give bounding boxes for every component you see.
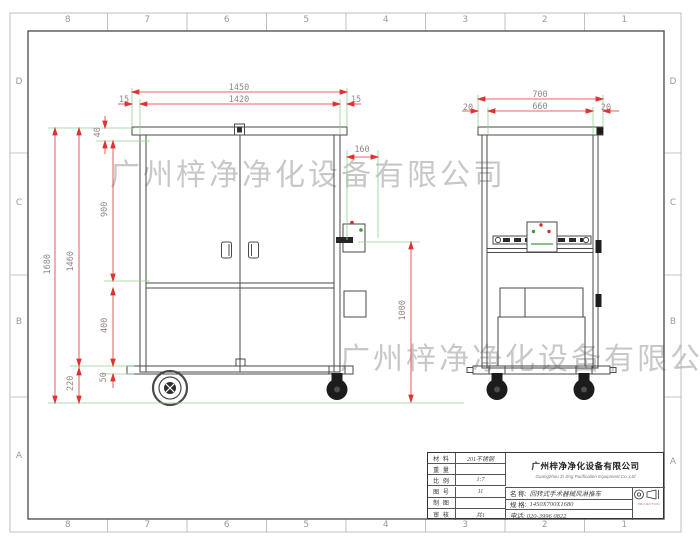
phone-row: 电话: 020-3996 0822: [506, 509, 632, 520]
dim-overall-height: 1680: [44, 246, 53, 282]
spec-label: 规 格:: [510, 499, 527, 509]
dim-door-height: 900: [101, 191, 110, 227]
title-block-row: 材 料 201不锈钢: [428, 453, 506, 464]
projection-symbol-icon: [633, 488, 661, 501]
dim-base: 50: [100, 359, 109, 395]
field-value: 共1: [456, 509, 506, 520]
title-block-row: 图 号 11: [428, 487, 506, 498]
field-value: 201不锈钢: [456, 453, 506, 463]
title-block-row: 重 量: [428, 464, 506, 475]
title-block: 材 料 201不锈钢 重 量 比 例 1:7 图 号 11 制 图 审 核 共1…: [427, 452, 664, 519]
field-label: 制 图: [428, 498, 456, 508]
title-block-row: 制 图: [428, 498, 506, 509]
title-block-row: 审 核 共1: [428, 509, 506, 520]
dim-side-box: 160: [344, 146, 380, 155]
company-name-cn: 广州梓净净化设备有限公司: [531, 460, 639, 472]
dim-left-margin: 15: [112, 96, 136, 105]
dim-depth-left-margin: 20: [456, 104, 480, 113]
dim-lower-section: 400: [101, 307, 110, 343]
drawing-sheet: 广州梓净净化设备有限公司 广州梓净净化设备有限公司: [0, 0, 700, 550]
dim-top-cap: 40: [94, 114, 103, 150]
field-label: 图 号: [428, 487, 456, 497]
dim-wheel-clearance: 220: [67, 365, 76, 401]
company-name-en: Guangzhou Zi Jing Purification Equipment…: [536, 474, 636, 479]
product-name-label: 名 称:: [510, 488, 527, 498]
dim-right-height: 1000: [399, 292, 408, 328]
company-cell: 广州梓净净化设备有限公司 Guangzhou Zi Jing Purificat…: [506, 453, 665, 488]
field-value: [456, 464, 506, 474]
title-block-row: 比 例 1:7: [428, 475, 506, 486]
side-view: [467, 127, 616, 400]
field-label: 材 料: [428, 453, 456, 463]
dim-body-height: 1460: [67, 243, 76, 279]
dim-inner-width: 1420: [221, 96, 257, 105]
field-label: 比 例: [428, 475, 456, 485]
field-value: 11: [456, 487, 506, 497]
projection-label: PROJECTION: [638, 502, 660, 505]
field-label: 重 量: [428, 464, 456, 474]
title-block-right: 广州梓净净化设备有限公司 Guangzhou Zi Jing Purificat…: [506, 453, 665, 520]
spec-value: 1450X700X1680: [530, 501, 574, 508]
dim-depth-right-margin: 20: [594, 104, 618, 113]
front-view: [127, 124, 366, 405]
dim-inner-depth: 660: [522, 103, 558, 112]
dim-overall-width: 1450: [221, 84, 257, 93]
spec-row: 规 格: 1450X700X1680: [506, 499, 632, 510]
projection-cell: PROJECTION: [632, 488, 665, 520]
field-label: 审 核: [428, 509, 456, 520]
field-value: 1:7: [456, 475, 506, 485]
dim-right-margin: 15: [344, 96, 368, 105]
product-name-value: 回转式手术器械风淋推车: [530, 488, 602, 498]
dim-overall-depth: 700: [522, 91, 558, 100]
field-value: [456, 498, 506, 508]
